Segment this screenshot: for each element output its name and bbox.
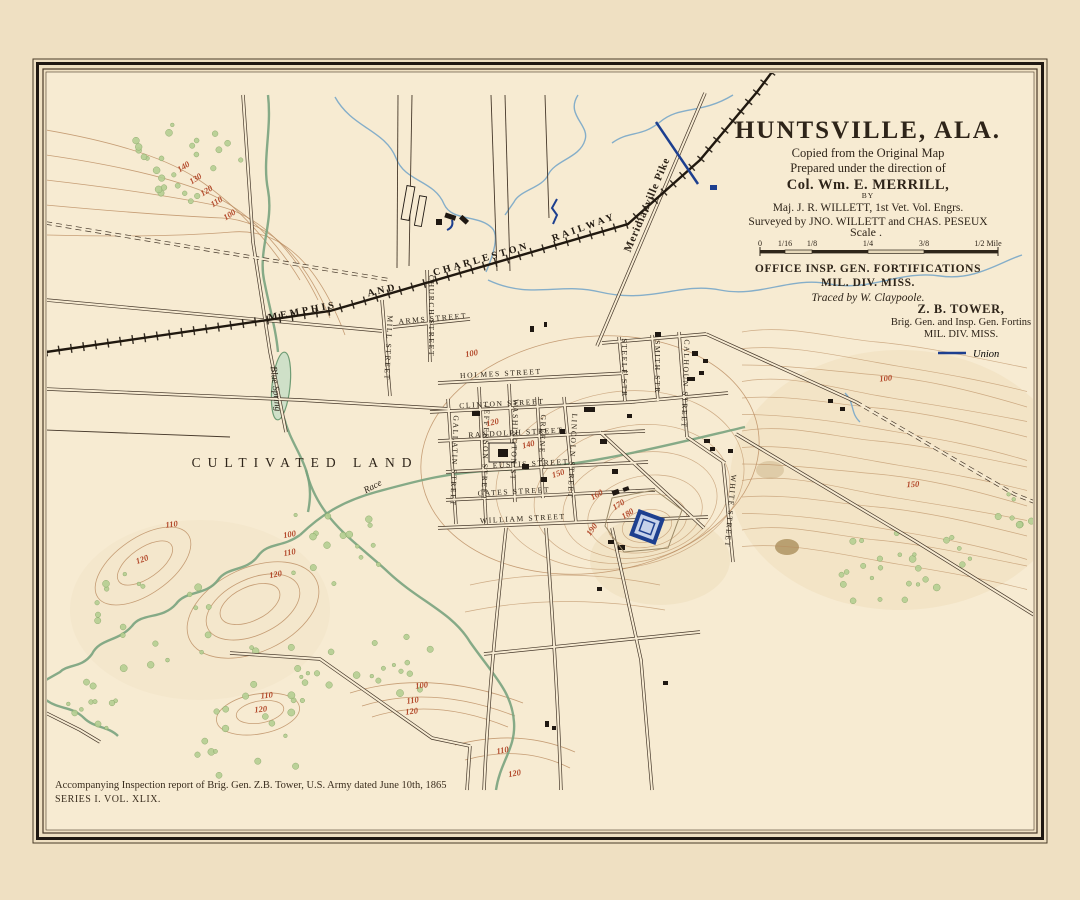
label-cultivated-land: CULTIVATED LAND [192, 455, 419, 470]
tree-icon [878, 565, 883, 570]
signatory-name: Z. B. TOWER, [918, 302, 1005, 316]
tree-icon [392, 663, 396, 667]
tree-icon [166, 658, 170, 662]
footer-line2: SERIES I. VOL. XLIX. [55, 794, 161, 805]
tree-icon [292, 571, 296, 575]
tree-icon [923, 577, 929, 583]
tree-icon [214, 709, 220, 715]
scale-word: Scale . [850, 225, 882, 239]
scale-tick-5: 1/2 Mile [974, 239, 1002, 248]
tree-icon [194, 138, 199, 143]
tree-icon [195, 584, 202, 591]
tree-icon [222, 725, 229, 732]
tree-icon [906, 581, 911, 586]
tree-icon [968, 557, 972, 561]
tree-icon [175, 183, 180, 188]
scale-tick-3: 1/4 [863, 239, 873, 248]
tree-icon [878, 597, 882, 601]
tree-icon [223, 706, 229, 712]
tree-icon [314, 671, 320, 677]
scale-tick-4: 3/8 [919, 239, 929, 248]
tree-icon [840, 581, 846, 587]
contour-label-120-21: 120 [254, 703, 268, 714]
tree-icon [120, 624, 126, 630]
tree-icon [250, 646, 254, 650]
tree-icon [1012, 497, 1016, 501]
tree-icon [898, 553, 902, 557]
footer-line1: Accompanying Inspection report of Brig. … [55, 780, 446, 791]
tree-icon [839, 572, 844, 577]
tree-icon [194, 193, 200, 199]
label-steele-str: STEELE STR [620, 338, 629, 397]
union-label: Union [973, 349, 999, 360]
tree-icon [95, 612, 100, 617]
tree-icon [93, 699, 97, 703]
tree-icon [105, 726, 109, 730]
tree-icon [251, 681, 257, 687]
tree-icon [158, 175, 165, 182]
tree-icon [216, 147, 222, 153]
tree-icon [172, 173, 177, 178]
tree-icon [877, 556, 883, 562]
contour-label-110-20: 110 [260, 689, 274, 700]
tree-icon [195, 752, 201, 758]
title-line2: Prepared under the direction of [790, 161, 946, 175]
tree-icon [292, 763, 298, 769]
contour-label-120-24: 120 [405, 705, 420, 717]
tree-icon [202, 738, 208, 744]
tree-icon [405, 660, 410, 665]
tree-icon [95, 721, 101, 727]
tree-icon [120, 665, 127, 672]
tree-icon [147, 661, 154, 668]
tree-icon [950, 535, 955, 540]
tree-icon [365, 516, 372, 523]
tree-icon [190, 143, 195, 148]
tree-icon [355, 545, 359, 549]
tree-icon [359, 555, 363, 559]
tree-icon [242, 693, 248, 699]
tree-icon [79, 707, 83, 711]
tree-icon [141, 154, 147, 160]
tree-icon [861, 563, 866, 568]
tree-icon [913, 553, 917, 557]
tree-icon [306, 671, 310, 675]
tree-icon [135, 144, 142, 151]
contour-label-110-15: 110 [165, 518, 179, 530]
tree-icon [368, 523, 373, 528]
tree-icon [90, 683, 96, 689]
tree-icon [324, 542, 331, 549]
tree-icon [844, 570, 849, 575]
title-author: Maj. J. R. WILLETT, 1st Vet. Vol. Engrs. [773, 202, 964, 214]
tree-icon [310, 564, 316, 570]
tree-icon [141, 584, 145, 588]
tree-icon [933, 584, 940, 591]
tree-icon [902, 597, 908, 603]
tree-icon [109, 700, 115, 706]
tree-icon [153, 641, 159, 647]
tree-icon [284, 734, 288, 738]
tree-icon [340, 532, 347, 539]
tree-icon [182, 191, 187, 196]
tree-icon [310, 533, 317, 540]
tree-icon [225, 140, 231, 146]
tree-icon [1016, 521, 1023, 528]
tree-icon [103, 580, 110, 587]
signatory-rank: Brig. Gen. and Insp. Gen. Fortins [891, 317, 1031, 328]
tree-icon [353, 672, 360, 679]
tree-icon [850, 538, 856, 544]
tree-icon [95, 617, 101, 623]
tree-icon [300, 675, 304, 679]
tree-icon [326, 682, 333, 689]
tree-icon [288, 709, 295, 716]
tree-icon [159, 156, 164, 161]
tree-icon [294, 513, 298, 517]
tree-icon [262, 714, 268, 720]
tree-icon [295, 665, 301, 671]
tree-icon [188, 199, 193, 204]
tree-icon [396, 690, 403, 697]
scale-tick-0: 0 [758, 239, 762, 248]
tree-icon [170, 123, 174, 127]
tree-icon [427, 646, 433, 652]
tree-icon [212, 131, 218, 137]
tree-icon [346, 531, 353, 538]
tree-icon [194, 152, 199, 157]
tree-icon [213, 749, 217, 753]
tree-icon [1010, 516, 1015, 521]
tree-icon [407, 671, 413, 677]
title-line1: Copied from the Original Map [792, 146, 945, 160]
contour-label-110-23: 110 [406, 694, 420, 706]
tree-icon [72, 710, 78, 716]
tree-icon [376, 678, 381, 683]
contour-label-100-22: 100 [415, 679, 430, 691]
tree-icon [206, 604, 211, 609]
label-church-street: CHURCH STREET [427, 275, 436, 357]
tree-icon [200, 650, 204, 654]
title-by: BY [862, 191, 874, 200]
tree-icon [288, 644, 294, 650]
label-greene-st: GREENE ST [537, 414, 548, 469]
map-title: HUNTSVILLE, ALA. [735, 117, 1001, 144]
tree-icon [995, 513, 1001, 519]
tree-icon [269, 720, 275, 726]
tree-icon [960, 562, 966, 568]
tree-icon [332, 581, 336, 585]
tree-icon [216, 772, 222, 778]
scale-tick-1: 1/16 [778, 239, 792, 248]
traced-by: Traced by W. Claypoole. [812, 292, 925, 304]
tree-icon [404, 634, 410, 640]
tree-icon [850, 598, 856, 604]
tree-icon [302, 680, 308, 686]
tree-icon [376, 562, 380, 566]
tree-icon [325, 513, 331, 519]
tree-icon [211, 165, 217, 171]
tree-icon [238, 158, 243, 163]
tree-icon [399, 669, 404, 674]
tree-icon [943, 537, 949, 543]
office-line2: MIL. DIV. MISS. [821, 277, 915, 289]
tree-icon [137, 582, 141, 586]
signatory-division: MIL. DIV. MISS. [924, 329, 998, 340]
tree-icon [870, 576, 874, 580]
tree-icon [957, 546, 961, 550]
tree-icon [133, 137, 140, 144]
contour-label-100-13: 100 [879, 372, 893, 383]
tree-icon [916, 583, 920, 587]
tree-icon [372, 640, 377, 645]
office-line1: OFFICE INSP. GEN. FORTIFICATIONS [755, 263, 981, 275]
label-smith-str: SMITH STR [653, 340, 662, 394]
tree-icon [328, 649, 334, 655]
tree-icon [205, 632, 211, 638]
tree-icon [166, 129, 173, 136]
tree-icon [300, 698, 305, 703]
tree-icon [95, 600, 100, 605]
tree-icon [255, 758, 261, 764]
map-sheet: MEMPHISANDCHARLESTONRAILWAYMeridianville… [0, 0, 1080, 900]
tree-icon [123, 572, 127, 576]
tree-icon [187, 592, 192, 597]
tree-icon [153, 167, 160, 174]
scale-tick-2: 1/8 [807, 239, 817, 248]
contour-label-150-14: 150 [906, 479, 920, 489]
tree-icon [288, 692, 295, 699]
tree-icon [381, 666, 385, 670]
tree-icon [120, 633, 125, 638]
tree-icon [370, 674, 374, 678]
tree-icon [1007, 492, 1011, 496]
tree-icon [915, 565, 921, 571]
map-canvas: MEMPHISANDCHARLESTONRAILWAYMeridianville… [0, 0, 1080, 900]
tree-icon [859, 538, 863, 542]
tree-icon [161, 185, 167, 191]
tree-icon [83, 679, 89, 685]
tree-icon [66, 702, 70, 706]
tree-icon [194, 606, 198, 610]
tree-icon [909, 556, 916, 563]
tree-icon [371, 543, 375, 547]
